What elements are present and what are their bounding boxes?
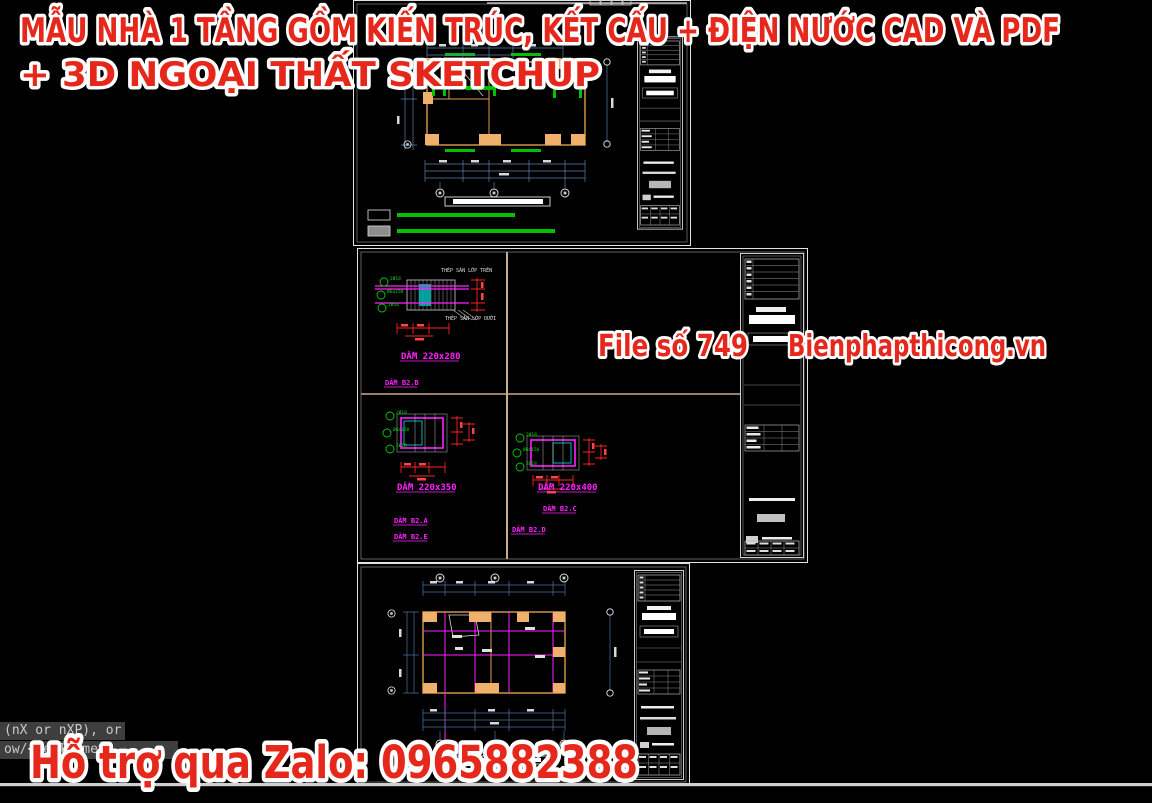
titleblock-beam-details xyxy=(741,254,804,558)
autocad-model-space: THÉP SÀN LỚP TRÊN 2Ø18 Ø6a150 2Ø18 xyxy=(0,0,1152,803)
watermark-file-number: File số 749 Bienphapthicong.vn xyxy=(592,322,1062,370)
scale-bar xyxy=(445,197,550,206)
note-top-steel: THÉP SÀN LỚP TRÊN xyxy=(441,266,492,274)
beam-tags xyxy=(452,627,545,658)
callout-1: 2Ø18 xyxy=(390,275,401,282)
callout-4: 2Ø18 xyxy=(396,409,407,416)
callout-3: 2Ø18 xyxy=(388,301,399,308)
callout-7: 2Ø18 xyxy=(526,431,537,438)
beam-name-1: DẦM B2.B xyxy=(385,378,419,387)
beam-name-3b: DẦM B2.D xyxy=(512,525,546,534)
dimension-values xyxy=(399,581,617,725)
file-number-label: File số 749 xyxy=(598,329,748,364)
watermark-title: MẪU NHÀ 1 TẦNG GỒM KIẾN TRÚC, KẾT CẤU + … xyxy=(10,2,1140,104)
plan-dimensions xyxy=(403,581,610,739)
callout-6: 2Ø18 xyxy=(396,442,407,449)
callout-8: Ø6a150 xyxy=(523,446,540,453)
beam-name-3a: DẦM B2.C xyxy=(543,504,577,513)
cad-sheet-beam-details[interactable]: THÉP SÀN LỚP TRÊN 2Ø18 Ø6a150 2Ø18 xyxy=(357,248,808,563)
grid-bubbles xyxy=(388,574,568,748)
beam-detail-3: 2Ø18 Ø6a150 2Ø18 DẦM 220x400 DẦM B2.C DẦ… xyxy=(511,431,607,534)
plan-walls xyxy=(423,612,565,693)
beam-detail-1: THÉP SÀN LỚP TRÊN 2Ø18 Ø6a150 2Ø18 xyxy=(375,266,496,387)
beam-details-drawing: THÉP SÀN LỚP TRÊN 2Ø18 Ø6a150 2Ø18 xyxy=(357,248,808,563)
callout-9: 2Ø18 xyxy=(526,460,537,467)
plan-legend xyxy=(368,210,555,236)
beam-detail-2: 2Ø18 Ø6a150 2Ø18 DẦM 220x350 DẦM B2.A DẦ… xyxy=(383,409,475,541)
beam-size-2: DẦM 220x350 xyxy=(397,481,457,493)
zalo-support-label: Hỗ trợ qua Zalo: 0965882388 xyxy=(30,736,638,789)
watermark-title-line2: + 3D NGOẠI THẤT SKETCHUP xyxy=(20,50,600,95)
watermark-zalo-support: Hỗ trợ qua Zalo: 0965882388 xyxy=(18,726,698,798)
watermark-title-line1: MẪU NHÀ 1 TẦNG GỒM KIẾN TRÚC, KẾT CẤU + … xyxy=(20,6,1060,51)
beam-size-1: DẦM 220x280 xyxy=(401,350,461,362)
callout-2: Ø6a150 xyxy=(387,288,404,295)
plan-columns xyxy=(423,612,565,693)
website-label: Bienphapthicong.vn xyxy=(788,329,1046,364)
beam-name-2a: DẦM B2.A xyxy=(394,516,429,525)
callout-5: Ø6a150 xyxy=(393,426,410,433)
beam-name-2b: DẦM B2.E xyxy=(394,532,428,541)
note-bottom-steel: THÉP SÀN LỚP DƯỚI xyxy=(445,314,496,322)
beam-size-3: DẦM 220x400 xyxy=(538,481,598,493)
